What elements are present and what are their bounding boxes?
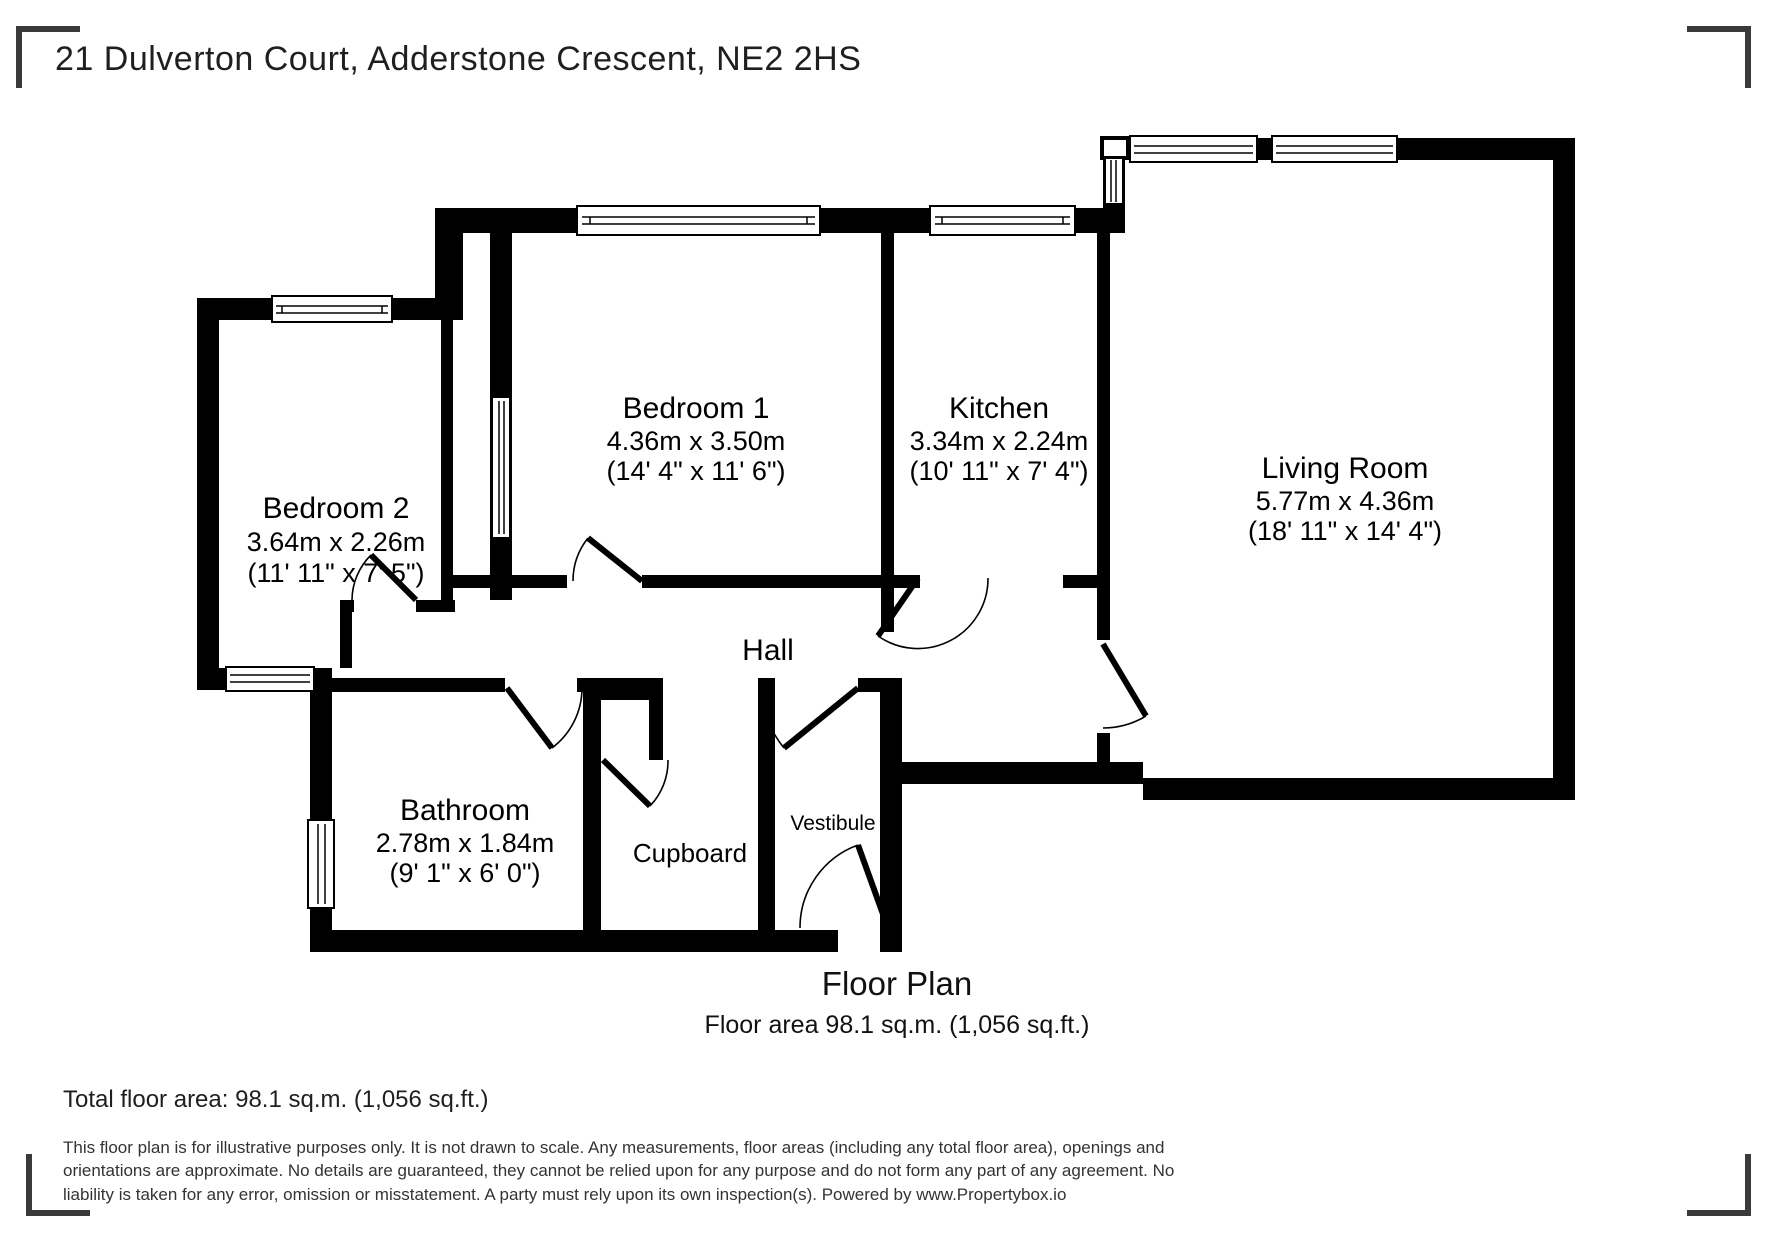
room-dim-imperial-bathroom: (9' 1" x 6' 0") <box>389 858 540 888</box>
floor-plan-svg: Bedroom 2 3.64m x 2.26m (11' 11" x 7' 5"… <box>0 0 1771 1239</box>
room-label-bedroom-2: Bedroom 2 <box>263 492 410 525</box>
door-icon <box>762 688 858 748</box>
door-icon <box>573 538 642 581</box>
floor-plan-page: 21 Dulverton Court, Adderstone Crescent,… <box>0 0 1771 1239</box>
room-label-vestibule: Vestibule <box>790 812 875 835</box>
room-dim-imperial-kitchen: (10' 11" x 7' 4") <box>909 456 1088 486</box>
room-dim-imperial-bedroom-1: (14' 4" x 11' 6") <box>606 456 785 486</box>
room-label-bedroom-1: Bedroom 1 <box>623 392 770 425</box>
window-icon <box>492 397 510 538</box>
room-label-hall: Hall <box>742 634 794 667</box>
plan-caption-area: Floor area 98.1 sq.m. (1,056 sq.ft.) <box>705 1011 1090 1039</box>
room-dim-metric-bedroom-2: 3.64m x 2.26m <box>247 527 426 557</box>
door-icon <box>1103 644 1146 728</box>
room-labels: Bedroom 2 3.64m x 2.26m (11' 11" x 7' 5"… <box>247 392 1442 888</box>
window-icon <box>1272 136 1397 162</box>
window-icon <box>930 206 1075 235</box>
room-dim-imperial-bedroom-2: (11' 11" x 7' 5") <box>247 558 424 588</box>
window-icon <box>272 296 392 322</box>
window-icon <box>308 820 334 908</box>
room-dim-metric-bathroom: 2.78m x 1.84m <box>376 828 555 858</box>
window-icon <box>577 206 820 235</box>
total-floor-area: Total floor area: 98.1 sq.m. (1,056 sq.f… <box>63 1086 489 1114</box>
room-label-living-room: Living Room <box>1262 452 1429 485</box>
room-label-bathroom: Bathroom <box>400 794 530 827</box>
room-label-cupboard: Cupboard <box>633 838 747 868</box>
room-dim-imperial-living-room: (18' 11" x 14' 4") <box>1248 516 1442 546</box>
plan-caption-title: Floor Plan <box>822 965 972 1002</box>
door-icon <box>603 760 668 806</box>
room-dim-metric-kitchen: 3.34m x 2.24m <box>910 426 1089 456</box>
door-icon <box>800 845 888 928</box>
disclaimer-text: This floor plan is for illustrative purp… <box>63 1136 1203 1206</box>
window-icon <box>1105 158 1123 204</box>
window-icon <box>226 667 314 691</box>
plan-caption: Floor Plan Floor area 98.1 sq.m. (1,056 … <box>705 965 1090 1039</box>
window-icon <box>1130 136 1257 162</box>
room-dim-metric-bedroom-1: 4.36m x 3.50m <box>607 426 786 456</box>
room-label-kitchen: Kitchen <box>949 392 1049 425</box>
room-dim-metric-living-room: 5.77m x 4.36m <box>1256 486 1435 516</box>
door-icon <box>507 688 582 748</box>
door-icon <box>878 578 988 649</box>
